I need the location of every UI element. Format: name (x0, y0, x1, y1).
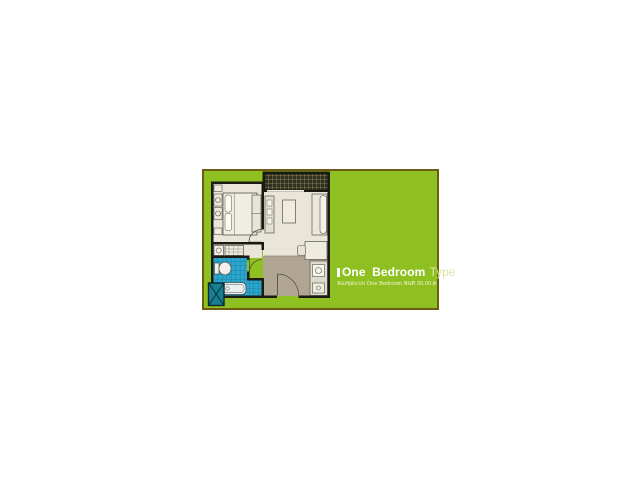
floor-plan-card: One Bedroom Type ห้องชุดแบบ One Bedroom … (202, 169, 439, 310)
sliding-door (267, 190, 304, 192)
unit-type-title: One Bedroom Type (337, 265, 437, 279)
title-bullet-icon (337, 268, 340, 277)
kitchen (310, 261, 328, 296)
utility-counter (214, 246, 244, 256)
page-background: { "window": { "width": 640, "height": 48… (0, 0, 640, 480)
title-main-text: One Bedroom (342, 265, 425, 279)
balcony (264, 173, 328, 192)
ac-ledge (209, 283, 225, 306)
coffee-table (283, 200, 296, 223)
kitchen-sink (313, 265, 325, 277)
unit-type-subtitle: ห้องชุดแบบ One Bedroom พื้นที่ 30.00 ตร.… (337, 281, 437, 288)
dining-table (305, 242, 327, 260)
title-secondary-text: Type (429, 265, 455, 279)
chair (298, 246, 306, 256)
